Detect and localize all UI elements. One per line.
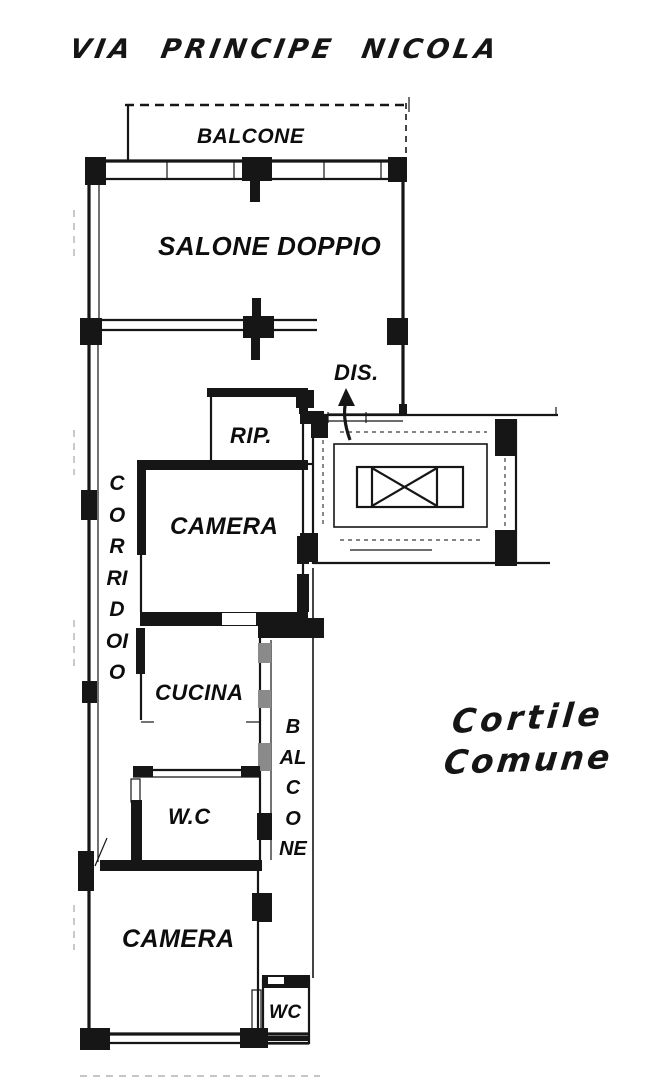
kitchen-walls <box>133 628 272 922</box>
wc-main-label: W.C <box>168 804 211 830</box>
hallway-label: CORRIDOIO <box>103 468 131 689</box>
kitchen-label: CUCINA <box>155 680 244 706</box>
courtyard-label-line1: Cortile <box>450 694 605 741</box>
courtyard-label-line2: Comune <box>442 737 615 782</box>
bedroom-lower-label: CAMERA <box>122 925 235 954</box>
disimpegno-label: DIS. <box>334 360 379 386</box>
exterior-right-wall <box>387 158 408 414</box>
balcony-top-label: BALCONE <box>197 125 304 149</box>
stairwell <box>300 407 558 566</box>
floor-plan: VIA PRINCIPE NICOLA BALCONE SALONE DOPPI… <box>0 0 650 1081</box>
exterior-top-wall <box>85 157 407 202</box>
elevator-shaft <box>357 467 463 507</box>
bedroom-upper-label: CAMERA <box>170 513 278 541</box>
wc-small-label: WC <box>269 1002 302 1024</box>
living-room-label: SALONE DOPPIO <box>158 231 381 262</box>
street-name-label: VIA PRINCIPE NICOLA <box>67 34 502 65</box>
floor-plan-linework <box>0 0 650 1081</box>
side-balcony-label: BALCONE <box>279 712 307 865</box>
storage-label: RIP. <box>230 423 272 449</box>
salone-bottom-wall <box>85 298 317 360</box>
bedroom-upper-walls <box>137 460 324 638</box>
